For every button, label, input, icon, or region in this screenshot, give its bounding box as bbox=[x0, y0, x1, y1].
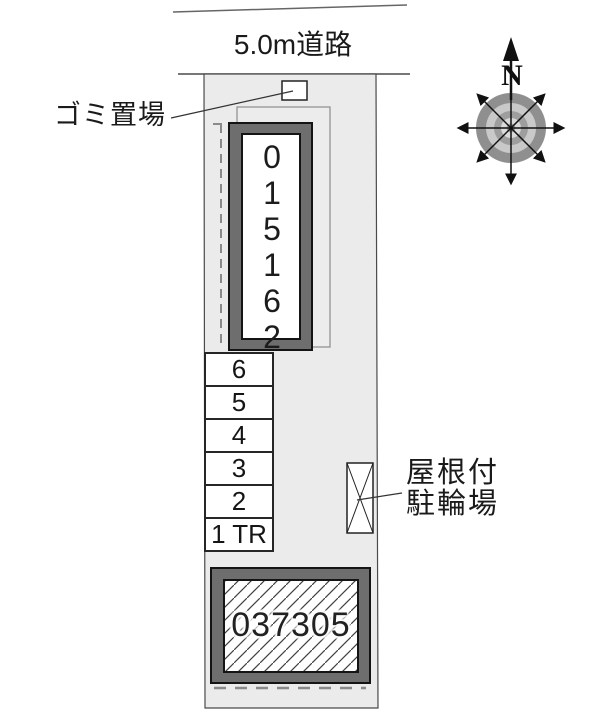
main-building-number: 015162 bbox=[251, 139, 292, 339]
parking-stall-label: 1 TR bbox=[211, 519, 267, 550]
compass-north-label: N bbox=[494, 59, 530, 92]
bicycle-parking-label-line2: 駐輪場 bbox=[406, 489, 499, 521]
garbage-area-box bbox=[282, 81, 307, 100]
road-label: 5.0m道路 bbox=[215, 30, 371, 61]
parking-stall-label: 5 bbox=[232, 387, 246, 418]
parking-stall-label: 4 bbox=[232, 420, 246, 451]
parking-stall-column: 6 5 4 3 2 1 TR bbox=[204, 352, 274, 536]
parking-stall-label: 6 bbox=[232, 354, 246, 385]
annex-building-number: 037305 bbox=[224, 580, 358, 672]
parking-stall-4: 4 bbox=[204, 418, 274, 453]
top-boundary-line bbox=[173, 5, 407, 12]
parking-stall-1-tr: 1 TR bbox=[204, 517, 274, 552]
parking-stall-label: 2 bbox=[232, 486, 246, 517]
bicycle-parking-label-line1: 屋根付 bbox=[406, 458, 499, 490]
parking-stall-2: 2 bbox=[204, 484, 274, 519]
parking-stall-3: 3 bbox=[204, 451, 274, 486]
north-arrow-icon bbox=[503, 37, 519, 61]
parking-stall-6: 6 bbox=[204, 352, 274, 387]
parking-stall-label: 3 bbox=[232, 453, 246, 484]
parking-stall-5: 5 bbox=[204, 385, 274, 420]
site-plan: 5.0m道路 ゴミ置場 015162 6 5 4 3 2 1 TR 屋根付 駐輪… bbox=[0, 0, 611, 720]
garbage-area-label: ゴミ置場 bbox=[54, 101, 166, 131]
